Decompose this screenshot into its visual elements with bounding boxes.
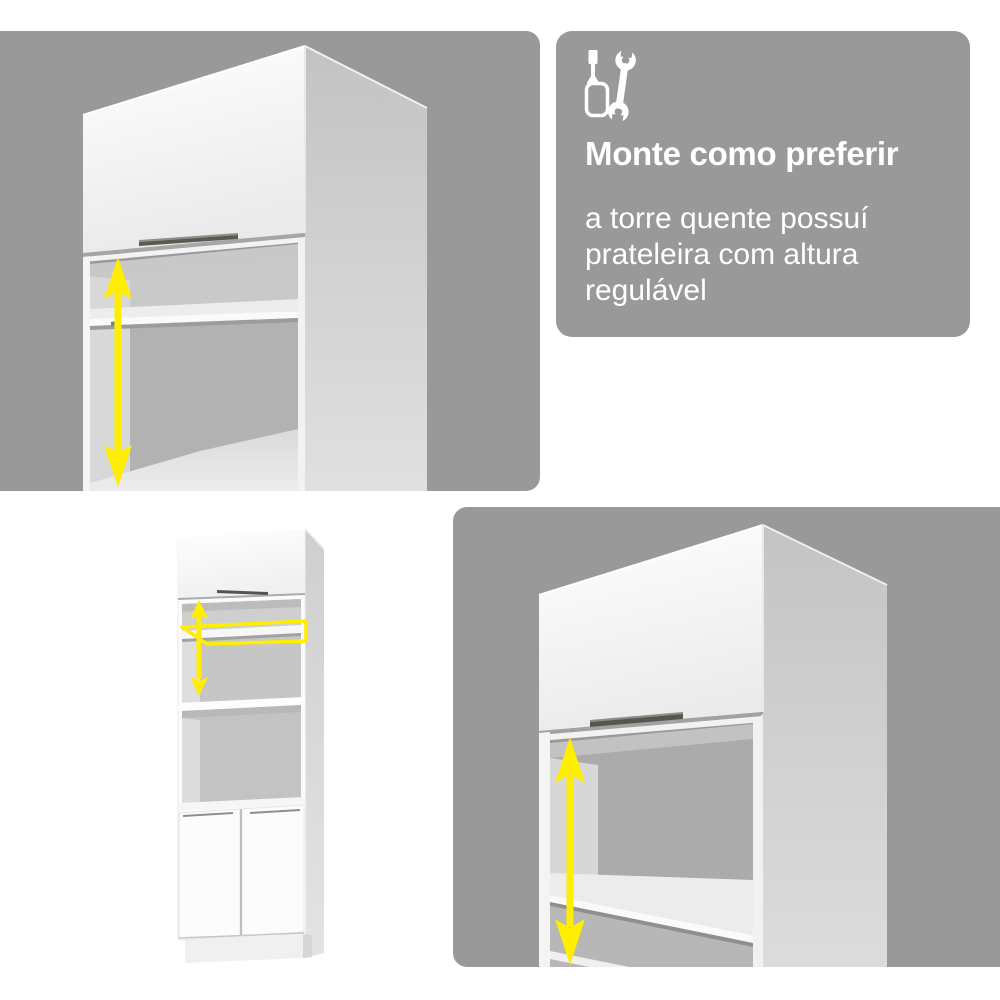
right-stile [298,237,305,491]
screwdriver-wrench-icon [585,50,635,122]
left-stile [539,732,550,967]
body-line-1: a torre quente possuí [585,201,869,237]
cabinet-top-closeup-render [0,31,540,491]
body-line-3: regulável [585,273,869,309]
panel-title: Monte como preferir [585,136,898,172]
tower-right-door [242,805,304,936]
figure-panel-top-left [0,31,540,491]
tower-niche2-left-wall [182,718,200,806]
cabinet-tower-full-render [150,515,340,985]
screwdriver-icon [587,50,608,116]
figure-panel-bottom-right [453,507,1000,967]
flip-door [539,525,763,731]
text-panel: Monte como preferir a torre quente possu… [556,31,970,337]
cabinet-side-face [305,46,427,491]
cabinet-side-face [763,525,887,967]
left-stile [83,256,90,491]
flip-door [83,46,305,253]
cabinet-niche-closeup-render [453,507,1000,967]
tower-flip-door [178,529,305,598]
plinth-side [303,934,312,958]
panel-body: a torre quente possuí prateleira com alt… [585,201,869,309]
tower-left-door [179,809,240,940]
tower-render [150,515,340,985]
tower-side-face [305,529,324,958]
right-stile [753,714,763,967]
body-line-2: prateleira com altura [585,237,869,273]
wrench-icon [609,44,634,127]
product-infographic-page: { "colors": { "page_background": "#fffff… [0,0,1000,1000]
